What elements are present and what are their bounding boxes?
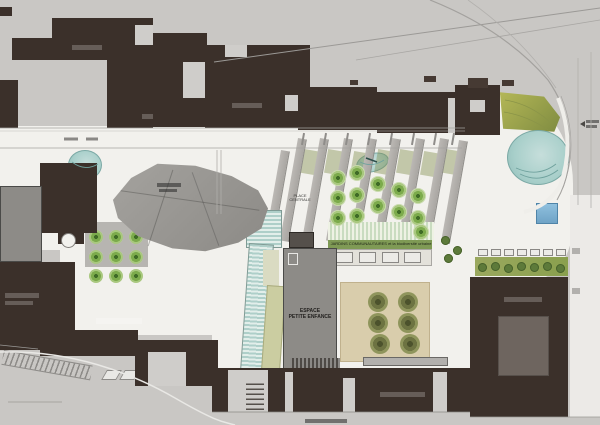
site-plan-canvas: JARDINS COMMUNAUTAIRES et la biodiversit… (0, 0, 600, 425)
road-linework (0, 0, 600, 425)
